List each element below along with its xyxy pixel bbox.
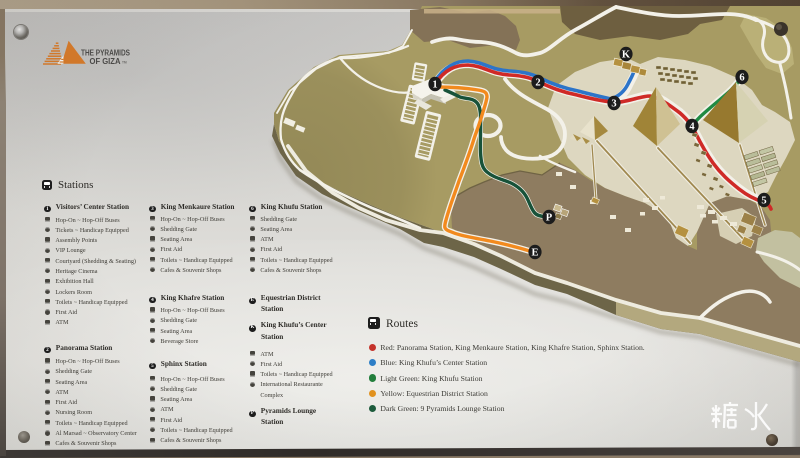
- svg-text:6: 6: [739, 73, 744, 84]
- svg-text:5: 5: [761, 196, 766, 207]
- svg-text:K: K: [622, 50, 631, 61]
- svg-text:E: E: [531, 248, 538, 259]
- svg-text:2: 2: [535, 78, 540, 89]
- svg-text:1: 1: [432, 80, 437, 91]
- svg-text:TM: TM: [122, 61, 127, 65]
- svg-text:P: P: [546, 213, 553, 224]
- svg-text:4: 4: [689, 122, 695, 133]
- svg-text:3: 3: [611, 99, 616, 110]
- svg-text:OF GIZA: OF GIZA: [90, 57, 121, 66]
